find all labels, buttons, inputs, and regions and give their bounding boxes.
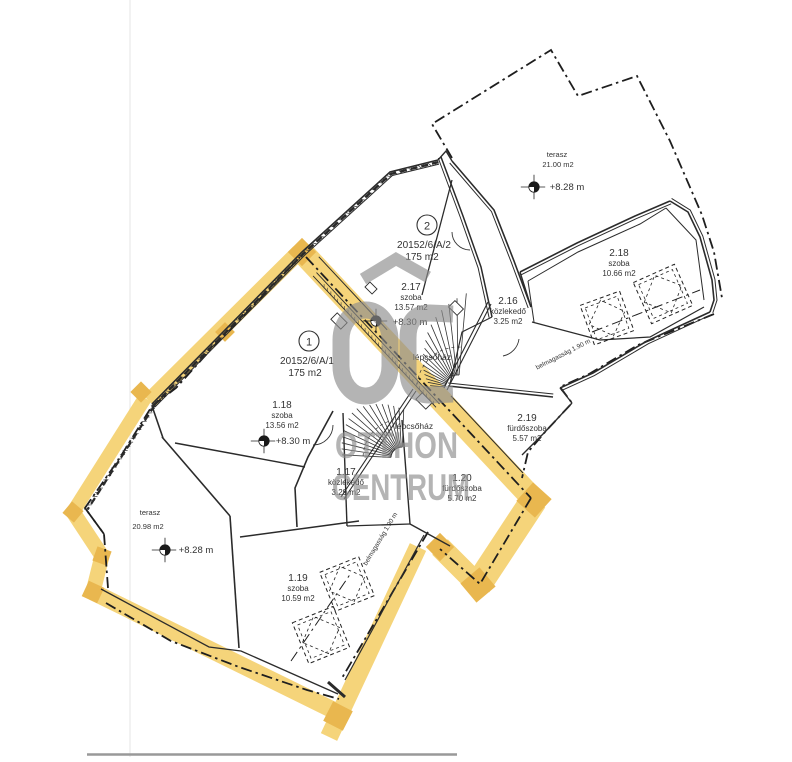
svg-text:5.57 m2: 5.57 m2 [513,434,542,443]
svg-text:1.18: 1.18 [272,400,292,411]
svg-text:+8.30 m: +8.30 m [276,436,311,447]
svg-text:CENTRUM: CENTRUM [332,467,470,508]
svg-text:lépcsőház: lépcsőház [413,352,451,362]
svg-text:+8.28 m: +8.28 m [179,545,214,556]
svg-text:közlekedő: közlekedő [490,307,527,316]
svg-text:OTTHON: OTTHON [335,425,458,466]
svg-text:szoba: szoba [287,584,309,593]
svg-text:1.19: 1.19 [288,573,308,584]
svg-text:terasz: terasz [547,150,568,159]
svg-text:2.17: 2.17 [401,282,421,293]
svg-text:2.19: 2.19 [517,413,537,424]
svg-text:3.25 m2: 3.25 m2 [494,317,523,326]
svg-text:175 m2: 175 m2 [288,368,322,379]
svg-text:21.00 m2: 21.00 m2 [542,160,573,169]
svg-text:szoba: szoba [608,259,630,268]
svg-text:1: 1 [306,337,312,349]
svg-text:10.66 m2: 10.66 m2 [602,269,636,278]
svg-text:fürdőszoba: fürdőszoba [507,424,547,433]
svg-text:szoba: szoba [400,293,422,302]
svg-text:13.56 m2: 13.56 m2 [265,421,299,430]
svg-text:10.59 m2: 10.59 m2 [281,594,315,603]
svg-text:2.16: 2.16 [498,296,518,307]
svg-text:+8.28 m: +8.28 m [550,182,585,193]
svg-text:20.98 m2: 20.98 m2 [132,522,163,531]
svg-text:2.18: 2.18 [609,248,629,259]
svg-text:2: 2 [424,221,430,233]
svg-text:20152/6/A/1: 20152/6/A/1 [280,356,334,367]
svg-text:szoba: szoba [271,411,293,420]
svg-text:terasz: terasz [140,508,161,517]
svg-text:20152/6/A/2: 20152/6/A/2 [397,240,451,251]
